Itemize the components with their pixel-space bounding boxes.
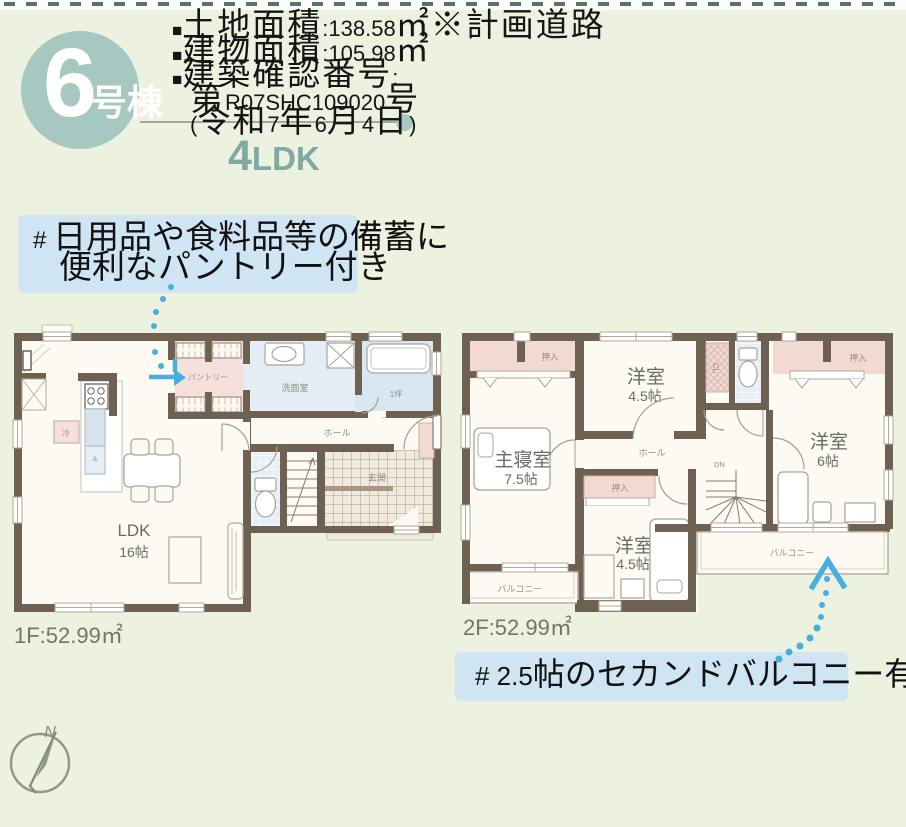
svg-text:洋室: 洋室 xyxy=(615,535,653,557)
svg-text:6帖: 6帖 xyxy=(817,453,839,469)
svg-text:冷: 冷 xyxy=(62,428,70,438)
svg-text:DN: DN xyxy=(714,460,725,469)
svg-text:ホール: ホール xyxy=(638,448,665,458)
svg-text:押入: 押入 xyxy=(541,352,559,362)
svg-text:1坪: 1坪 xyxy=(390,390,402,399)
svg-text:押入: 押入 xyxy=(849,353,867,363)
svg-text:N: N xyxy=(44,724,56,741)
svg-text:16帖: 16帖 xyxy=(119,544,149,560)
svg-text:ホール: ホール xyxy=(323,428,350,438)
svg-text:バルコニー: バルコニー xyxy=(498,584,543,594)
svg-text:洗面室: 洗面室 xyxy=(281,382,308,393)
svg-text:バルコニー: バルコニー xyxy=(770,548,815,558)
svg-text:洋室: 洋室 xyxy=(627,366,665,388)
svg-text:パントリー: パントリー xyxy=(188,373,228,382)
svg-text:LDK: LDK xyxy=(117,521,151,540)
svg-text:7.5帖: 7.5帖 xyxy=(504,471,537,487)
svg-text:玄関: 玄関 xyxy=(368,472,386,483)
svg-text:CL: CL xyxy=(711,363,720,374)
svg-text:洋室: 洋室 xyxy=(810,431,848,453)
svg-text:主寝室: 主寝室 xyxy=(494,449,551,471)
svg-text:4.5帖: 4.5帖 xyxy=(616,556,649,572)
svg-text:押入: 押入 xyxy=(611,483,629,493)
